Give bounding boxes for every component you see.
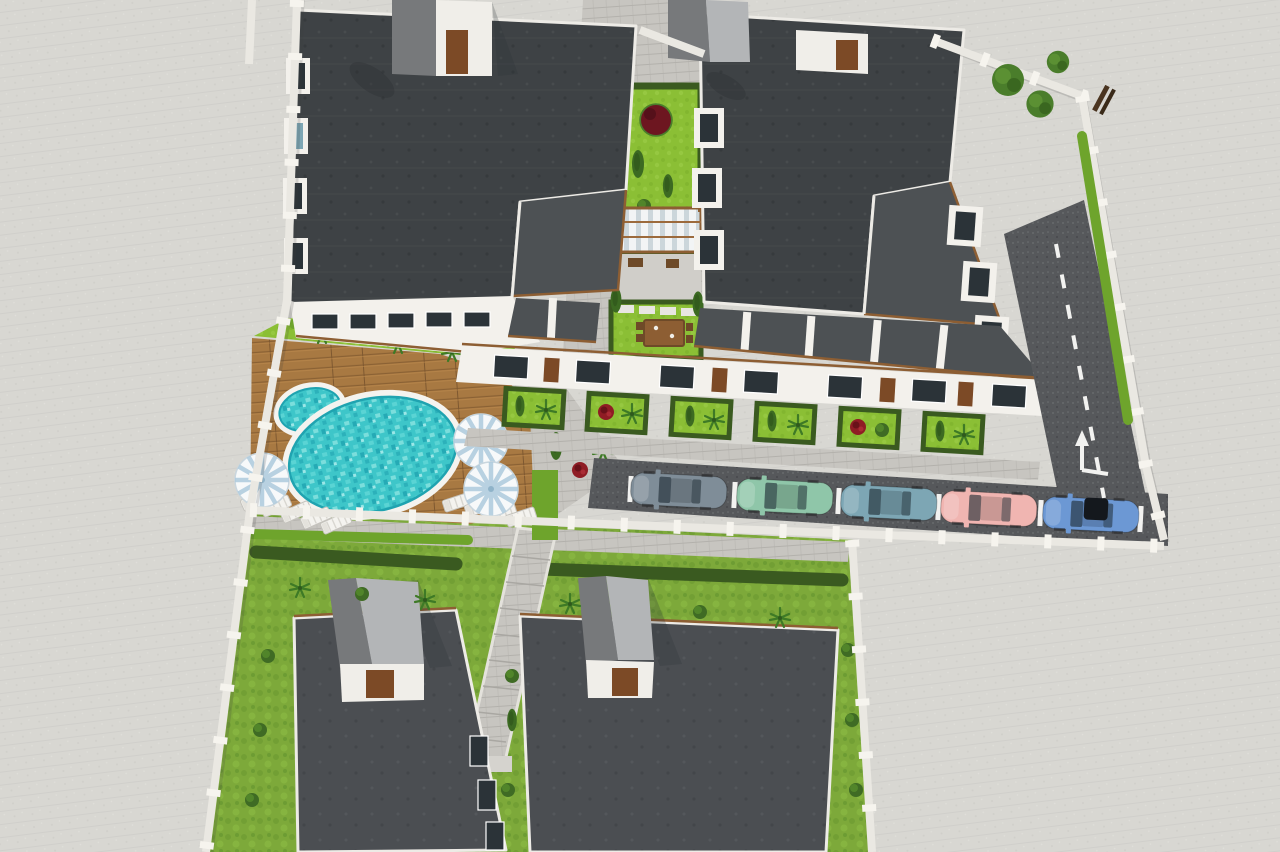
block-d-roof xyxy=(520,616,838,852)
front-garden xyxy=(671,398,731,437)
bench-seat xyxy=(628,258,643,267)
front-garden xyxy=(504,388,564,427)
chair xyxy=(636,334,643,342)
balcony-window xyxy=(698,174,716,202)
outdoor-dining-set xyxy=(636,320,693,346)
balcony-window xyxy=(968,267,990,296)
pergola xyxy=(612,205,704,256)
complex-render xyxy=(0,0,1280,852)
render-viewport xyxy=(0,0,1280,852)
shrub xyxy=(505,669,519,683)
cypress-tree xyxy=(632,150,644,178)
block-a-tower-door xyxy=(446,30,468,74)
shrub xyxy=(253,723,267,737)
cypress-tree xyxy=(507,709,517,731)
shrub xyxy=(261,649,275,663)
cypress-tree xyxy=(663,174,673,198)
plate xyxy=(670,334,674,338)
corner-tree xyxy=(1047,51,1069,73)
balcony-window xyxy=(700,114,718,142)
chair xyxy=(686,323,693,331)
stair-side-hedge xyxy=(532,470,558,540)
block-b-tower2-door xyxy=(836,40,858,70)
block-a-terrace xyxy=(512,190,626,296)
bottom-section xyxy=(206,514,872,852)
shrub xyxy=(849,783,863,797)
front-garden xyxy=(923,413,983,452)
plate xyxy=(654,326,658,330)
corner-tree xyxy=(1026,90,1053,117)
bench-seat xyxy=(666,259,679,268)
shrub xyxy=(355,587,369,601)
block-d-tower-door xyxy=(612,668,638,696)
front-garden xyxy=(839,408,899,447)
block-c-tower-door xyxy=(366,670,394,698)
front-garden xyxy=(587,393,647,432)
block-b-west-balconies xyxy=(692,108,724,270)
car-5-sunroof xyxy=(1083,497,1108,520)
dining-table xyxy=(644,320,684,346)
pergola-canopy xyxy=(615,208,701,252)
courtyard-plaza xyxy=(613,254,701,304)
chair xyxy=(686,335,693,343)
red-flower-bush xyxy=(572,462,588,478)
chair xyxy=(636,322,643,330)
block-b-tower-roof-light xyxy=(706,0,750,62)
deck-lower-hedge xyxy=(252,534,468,540)
pool-parasol xyxy=(464,462,518,516)
shrub xyxy=(693,605,707,619)
balcony-window xyxy=(954,211,976,240)
front-garden xyxy=(755,403,815,442)
block-a-tower-roof-dark xyxy=(392,0,436,76)
balcony-window xyxy=(700,236,718,264)
shrub xyxy=(245,793,259,807)
shrub xyxy=(501,783,515,797)
northwest-wall-fragment xyxy=(249,0,252,64)
red-leaf-tree-shade xyxy=(644,108,656,120)
corner-tree xyxy=(992,64,1024,96)
red-leaf-tree-crown xyxy=(641,105,671,135)
shrub xyxy=(845,713,859,727)
